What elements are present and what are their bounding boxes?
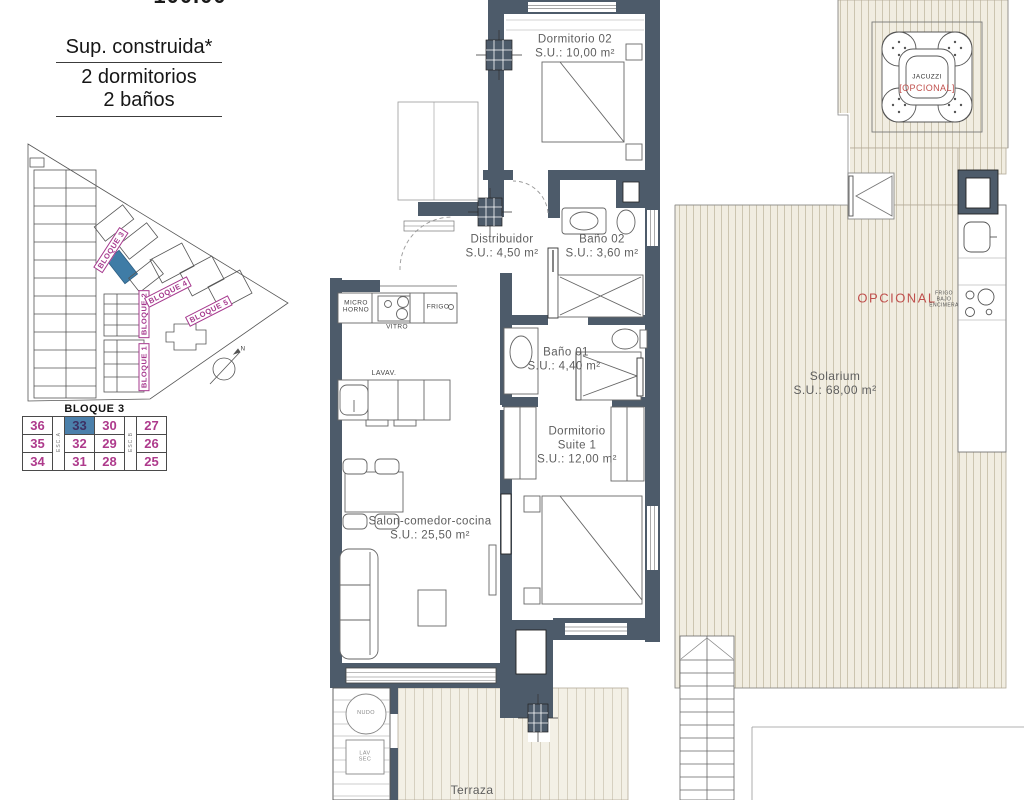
summary-block: Sup. construida* 2 dormitorios 2 baños [56,36,222,117]
clipped-dimension: 100.00 [153,0,226,9]
unit-cell[interactable]: 27 [137,417,167,435]
floorplan-drawing [0,0,1024,800]
room-label-bano01: Baño 01 [543,346,589,359]
tv-cabinet [418,590,446,626]
bathroom02-fixtures [558,208,643,317]
stair-label-b: ESC.B [125,417,137,471]
unit-cell[interactable]: 34 [23,453,53,471]
unit-cell[interactable]: 28 [95,453,125,471]
room-area-salon: S.U.: 25,50 m² [390,529,470,542]
floorplan-page: 100.00 Sup. construida* 2 dormitorios 2 … [0,0,1024,800]
label-lav-sec: LAV SEC [355,751,375,764]
room-area-dormitorio02: S.U.: 10,00 m² [535,47,615,60]
site-label-bloque1: BLOQUE 1 [139,343,150,391]
bed-dorm02 [542,44,642,160]
label-micro-horno: MICRO HORNO [339,300,373,315]
unit-cell[interactable]: 32 [65,435,95,453]
compass-north-label: N [241,347,246,354]
label-jacuzzi: JACUZZI [912,73,942,80]
kitchen-island [338,380,450,426]
room-label-solarium: Solarium [810,370,861,384]
label-opcional: OPCIONAL [857,292,936,307]
label-vitro: VITRO [386,323,408,330]
summary-line2: 2 dormitorios [56,63,222,89]
label-lavavajillas: LAVAV. [372,370,397,378]
shower-symbol [848,173,894,219]
room-area-solarium: S.U.: 68,00 m² [794,384,877,398]
room-label-bano02: Baño 02 [579,233,625,246]
unit-cell[interactable]: 35 [23,435,53,453]
unit-cell[interactable]: 30 [95,417,125,435]
solarium-stairs [680,636,734,800]
label-utility-circle: NUDO [357,710,375,716]
sofa [340,549,378,659]
room-area-bano01: S.U.: 4,40 m² [528,360,601,373]
summary-line3: 2 baños [56,89,222,117]
room-label-distribuidor: Distribuidor [471,233,534,246]
stair-label-a: ESC.A [53,417,65,471]
unit-cell[interactable]: 26 [137,435,167,453]
tv [489,545,496,595]
label-frigo: FRIGO [427,303,450,310]
unit-cell[interactable]: 29 [95,435,125,453]
unit-table: BLOQUE 3 36 ESC.A 33 30 ESC.B 27 35 32 2… [22,403,167,471]
unit-cell[interactable]: 25 [137,453,167,471]
unit-cell[interactable]: 31 [65,453,95,471]
summary-line1: Sup. construida* [56,36,222,63]
room-label-terraza: Terraza [451,784,494,798]
unit-cell[interactable]: 36 [23,417,53,435]
unit-cell-selected[interactable]: 33 [65,417,95,435]
label-jacuzzi-opcional: [OPCIONAL] [899,83,955,93]
outdoor-kitchen [958,170,1006,452]
label-frigo-bajo-encimera: FRIGO BAJO ENCIMERA [929,291,959,308]
room-area-suite: S.U.: 12,00 m² [537,453,617,466]
room-area-distribuidor: S.U.: 4,50 m² [466,247,539,260]
room-label-salon: Salon-comedor-cocina [368,515,491,528]
site-plan [28,144,288,401]
entry-porch [398,102,478,200]
room-label-suite-2: Suite 1 [558,439,597,452]
utility-room [333,688,390,800]
room-label-suite-1: Dormitorio [548,425,605,438]
room-label-dormitorio02: Dormitorio 02 [538,33,612,46]
room-area-bano02: S.U.: 3,60 m² [566,247,639,260]
unit-table-title: BLOQUE 3 [22,403,167,415]
